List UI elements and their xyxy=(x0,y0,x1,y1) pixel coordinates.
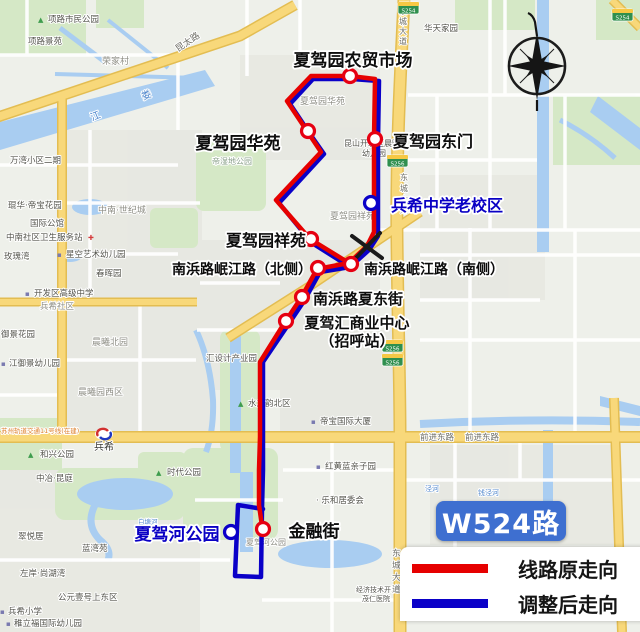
highway-badge-2: S256 xyxy=(387,155,408,168)
stop-label-3: 兵希中学老校区 xyxy=(391,196,503,215)
map-label-36: 帝湿地公园 xyxy=(212,156,252,166)
highway-badge-1: S254 xyxy=(612,9,633,22)
map-label-29: 帝宝国际大厦 xyxy=(320,416,372,427)
map-label-16: 晨曦北园 xyxy=(92,336,128,348)
map-label-25: 公元壹号上东区 xyxy=(58,592,118,603)
map-label-12: 开发区高级中学 xyxy=(34,288,94,299)
map-label-14: 御景花园 xyxy=(1,329,35,340)
map-label-53: 道 xyxy=(399,36,407,46)
map-label-26: 兵希小学 xyxy=(8,606,43,617)
stop-marker-4 xyxy=(305,233,318,246)
highway-badge-label: S256 xyxy=(391,162,405,168)
map-poi-icon-10: ▪ xyxy=(0,608,5,616)
stop-marker-5 xyxy=(312,262,325,275)
route-number-label: W524路 xyxy=(442,502,560,541)
highway-badge-0: S254 xyxy=(398,2,419,15)
stop-label-8-line2: （招呼站） xyxy=(319,332,394,350)
map-label-24: 左岸·尚湖湾 xyxy=(20,568,66,579)
map-label-2: 荣家村 xyxy=(102,55,129,67)
map-label-23: 蓝湾苑 xyxy=(82,543,108,554)
map-label-4: 万湾小区二期 xyxy=(10,155,61,166)
map-label-32: 夏驾园华苑 xyxy=(300,95,345,107)
map-label-18: 汇设计产业园 xyxy=(206,353,257,364)
highway-badge-band xyxy=(398,2,419,6)
stop-label-7: 南浜路夏东街 xyxy=(313,290,403,308)
stop-marker-7 xyxy=(296,291,309,304)
map-poi-icon-9: ▪ xyxy=(316,463,321,471)
map-poi-icon-4: ✚ xyxy=(88,234,94,242)
map-label-43: 兵希 xyxy=(94,440,114,453)
map-label-17: 晨曦园西区 xyxy=(78,386,123,398)
map-poi-icon-6: ▪ xyxy=(25,290,30,298)
stop-marker-9 xyxy=(257,523,270,536)
map-label-54: 东 xyxy=(400,172,408,182)
stop-marker-6 xyxy=(345,258,358,271)
map-poi-icon-11: ▪ xyxy=(6,620,11,628)
stop-label-8: 夏驾汇商业中心 xyxy=(303,314,409,332)
map-label-10: 中南·世纪城 xyxy=(98,204,146,216)
map-poi-icon-7: ▪ xyxy=(1,360,6,368)
stop-label-2: 夏驾园东门 xyxy=(392,132,473,151)
map-label-39: 茂仁医院 xyxy=(362,594,390,603)
highway-badge-4: S256 xyxy=(382,354,403,367)
map-label-8: 玫瑰湾 xyxy=(4,251,30,262)
map-label-21: 中冶·昆庭 xyxy=(36,473,73,484)
route-map: ▲▲▲▲✚▪▪▪▪▪▪▪ 项路市民公园项路景苑荣家村华天家园万湾小区二期琨华·帝… xyxy=(0,0,640,632)
map-label-19: 和兴公园 xyxy=(40,450,74,460)
map-label-7: 中南社区卫生服务站 xyxy=(6,232,83,243)
map-label-37: 夏驾河公园 xyxy=(246,537,286,547)
stop-marker-1 xyxy=(302,125,315,138)
map-label-13: 兵希社区 xyxy=(40,301,75,312)
stop-marker-2 xyxy=(369,133,382,146)
highway-badge-band xyxy=(612,9,633,13)
map-label-51: 城 xyxy=(399,17,407,26)
map-label-55: 城 xyxy=(400,184,408,193)
highway-badge-band xyxy=(382,354,403,358)
map-label-3: 华天家园 xyxy=(424,23,458,34)
map-poi-icon-8: ▪ xyxy=(311,418,316,426)
stop-label-4: 夏驾园祥苑 xyxy=(225,231,306,250)
stop-marker-8 xyxy=(280,315,293,328)
map-label-33: 夏驾园祥苑 xyxy=(330,210,375,222)
map-label-6: 国际公馆 xyxy=(30,218,64,229)
stop-marker-3 xyxy=(365,197,378,210)
map-label-11: 春晖园 xyxy=(96,268,122,279)
map-label-9: 星空艺术幼儿园 xyxy=(66,249,126,260)
stop-label-6: 南浜路岷江路（南侧） xyxy=(364,261,504,278)
legend-row-adjusted: 调整后走向 xyxy=(400,588,640,618)
stop-label-5: 南浜路岷江路（北侧） xyxy=(172,261,312,278)
highway-badge-label: S256 xyxy=(386,361,400,367)
map-label-42: 前进东路 xyxy=(465,432,500,443)
stop-label-0: 夏驾园农贸市场 xyxy=(294,50,413,71)
map-label-1: 项路景苑 xyxy=(28,36,63,47)
highway-badge-label: S254 xyxy=(402,9,416,15)
map-label-15: 江御景幼儿园 xyxy=(9,358,60,369)
map-label-27: 稚立福国际幼儿园 xyxy=(14,618,82,629)
legend-adjusted-swatch xyxy=(412,599,488,608)
metro-station-icon xyxy=(95,428,113,440)
map-label-30: 红黄蓝亲子园 xyxy=(325,461,376,472)
highway-badge-label: S254 xyxy=(616,16,630,22)
legend-original-label: 线路原走向 xyxy=(518,554,618,583)
map-label-22: 翠悦居 xyxy=(18,531,44,542)
map-label-31: · 乐和居委会 xyxy=(316,495,364,506)
map-poi-icon-1: ▲ xyxy=(28,451,34,459)
map-label-41: 前进东路 xyxy=(420,432,455,443)
map-label-20: 时代公园 xyxy=(167,467,201,478)
map-poi-icon-5: ▪ xyxy=(57,251,62,259)
map-label-5: 琨华·帝宝花园 xyxy=(8,200,62,211)
highway-badge-band xyxy=(387,155,408,159)
legend: 线路原走向 调整后走向 xyxy=(400,547,640,621)
map-label-44: 苏州轨道交通11号线(在建) xyxy=(1,426,79,435)
legend-adjusted-label: 调整后走向 xyxy=(518,589,618,618)
legend-row-original: 线路原走向 xyxy=(400,553,640,583)
legend-original-swatch xyxy=(412,564,488,573)
stop-marker-0 xyxy=(344,70,357,83)
map-poi-icon-0: ▲ xyxy=(38,16,44,24)
map-label-28: 水之韵北区 xyxy=(248,398,291,409)
stop-label-9: 金融街 xyxy=(288,521,340,542)
stop-marker-10 xyxy=(225,526,238,539)
map-label-48: 钱泾河 xyxy=(478,488,499,497)
map-poi-icon-2: ▲ xyxy=(156,469,162,477)
stop-label-10: 夏驾河公园 xyxy=(135,525,220,545)
map-label-49: 泾河 xyxy=(425,485,439,493)
map-poi-icon-3: ▲ xyxy=(238,400,244,408)
route-number-badge: W524路 xyxy=(436,501,566,541)
map-label-0: 项路市民公园 xyxy=(48,14,99,25)
map-label-52: 大 xyxy=(399,26,407,36)
stop-label-1: 夏驾园华苑 xyxy=(196,133,281,154)
